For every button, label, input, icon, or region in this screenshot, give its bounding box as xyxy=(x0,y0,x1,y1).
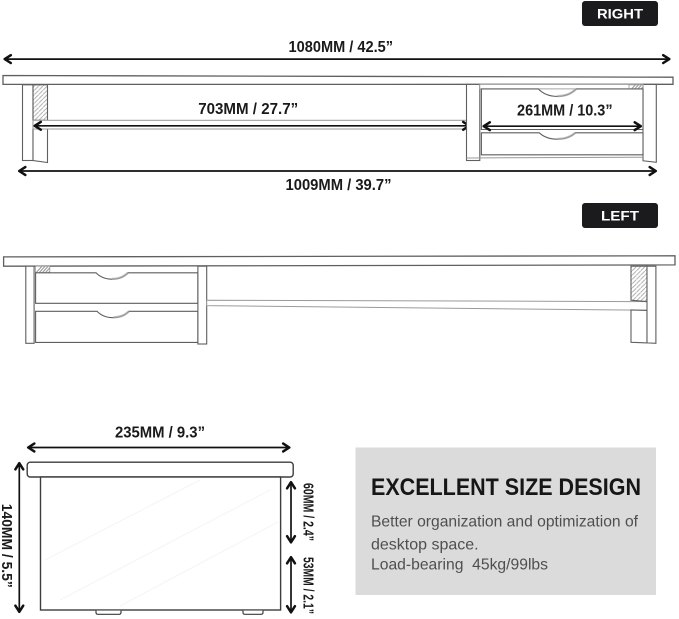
svg-text:703MM / 27.7”: 703MM / 27.7” xyxy=(198,101,298,118)
svg-text:Load-bearing 45kg/99lbs: Load-bearing 45kg/99lbs xyxy=(371,557,548,574)
svg-text:desktop space.: desktop space. xyxy=(371,537,479,554)
svg-text:261MM / 10.3”: 261MM / 10.3” xyxy=(517,102,613,119)
svg-text:140MM / 5.5”: 140MM / 5.5” xyxy=(0,504,15,588)
svg-text:235MM / 9.3”: 235MM / 9.3” xyxy=(115,425,205,442)
svg-text:EXCELLENT SIZE DESIGN: EXCELLENT SIZE DESIGN xyxy=(371,474,641,501)
svg-text:LEFT: LEFT xyxy=(601,208,639,224)
svg-text:1009MM / 39.7”: 1009MM / 39.7” xyxy=(286,177,392,194)
svg-text:RIGHT: RIGHT xyxy=(597,6,643,22)
svg-text:1080MM / 42.5”: 1080MM / 42.5” xyxy=(289,39,394,56)
svg-text:60MM / 2.4”: 60MM / 2.4” xyxy=(299,483,315,541)
svg-text:53MM / 2.1”: 53MM / 2.1” xyxy=(299,557,315,614)
svg-text:Better organization and optimi: Better organization and optimization of xyxy=(371,514,639,531)
